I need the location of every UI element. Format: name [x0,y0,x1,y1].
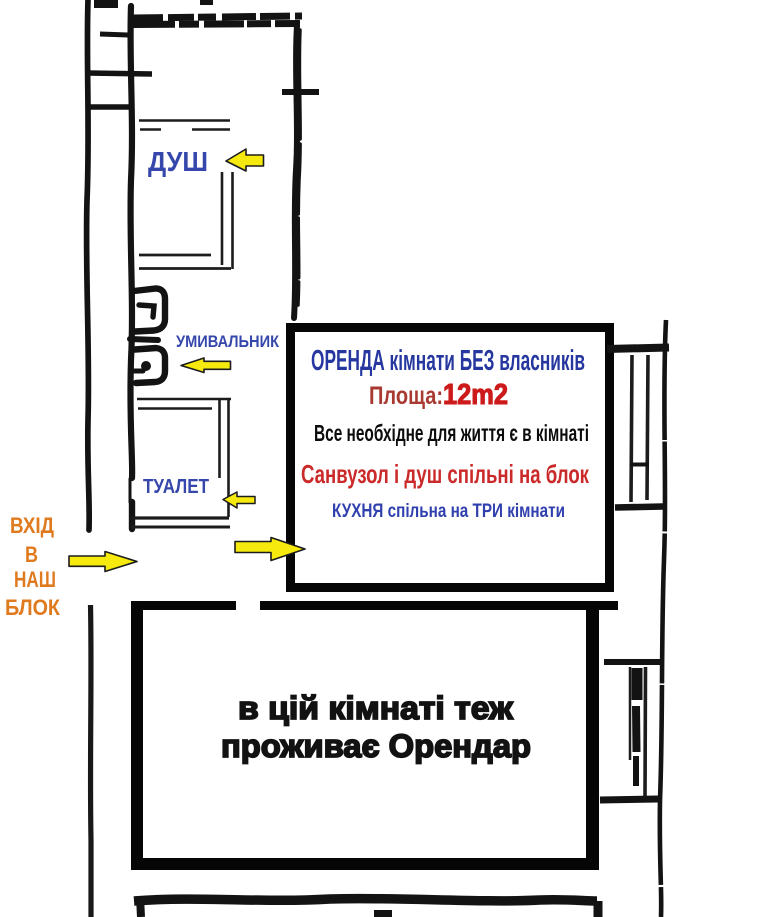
svg-text:ВХІД: ВХІД [10,513,54,538]
svg-text:ДУШ: ДУШ [148,146,208,177]
svg-text:12m2: 12m2 [443,379,508,411]
svg-text:ТУАЛЕТ: ТУАЛЕТ [143,476,209,498]
svg-text:КУХНЯ спільна на ТРИ кімнати: КУХНЯ спільна на ТРИ кімнати [332,501,565,522]
svg-text:Санвузол і душ спільні на блок: Санвузол і душ спільні на блок [301,459,590,489]
svg-text:НАШ: НАШ [14,567,56,592]
svg-text:ОРЕНДА кімнати БЕЗ власників: ОРЕНДА кімнати БЕЗ власників [311,345,585,377]
svg-text:в цій кімнаті теж: в цій кімнаті теж [238,690,513,726]
svg-text:УМИВАЛЬНИК: УМИВАЛЬНИК [176,332,280,351]
svg-text:БЛОК: БЛОК [5,595,61,620]
svg-text:Площа:: Площа: [369,382,443,410]
svg-text:проживає Орендар: проживає Орендар [221,728,531,764]
svg-text:Все необхідне для життя є в кі: Все необхідне для життя є в кімнаті [314,420,589,446]
svg-text:В: В [25,542,38,567]
